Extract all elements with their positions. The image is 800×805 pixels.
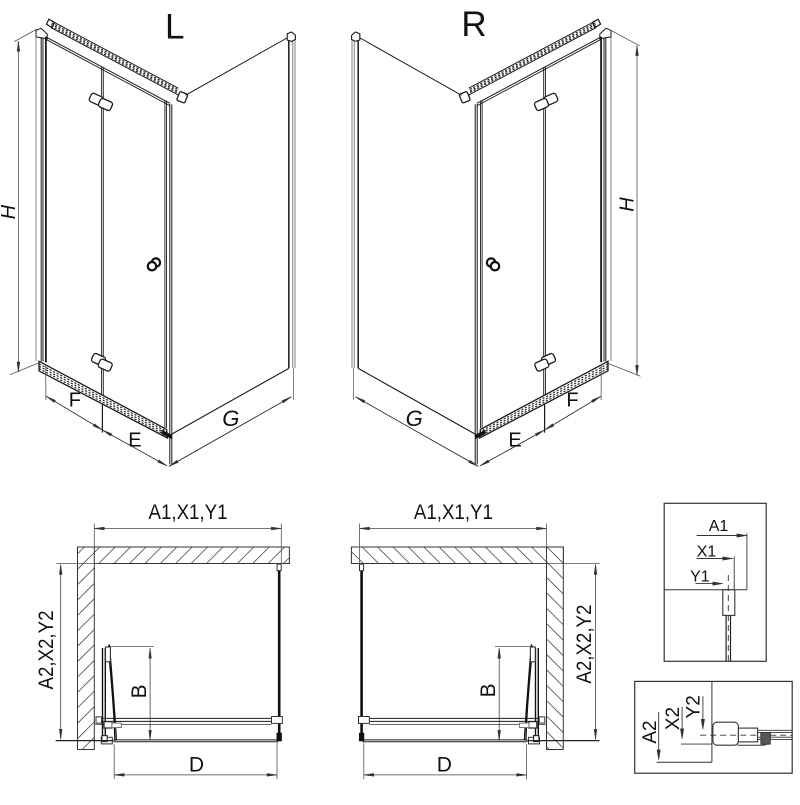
svg-text:F: F	[69, 389, 81, 411]
svg-text:H: H	[617, 197, 639, 212]
svg-text:L: L	[165, 7, 184, 46]
svg-text:H: H	[0, 204, 20, 219]
svg-text:D: D	[437, 754, 452, 777]
svg-text:A1: A1	[709, 518, 729, 535]
svg-text:F: F	[566, 389, 578, 411]
svg-text:A1,X1,Y1: A1,X1,Y1	[149, 501, 228, 524]
svg-text:X1: X1	[697, 543, 717, 560]
svg-text:A2: A2	[640, 720, 661, 743]
svg-text:B: B	[128, 684, 151, 698]
svg-text:X2: X2	[663, 707, 684, 730]
svg-text:Y2: Y2	[684, 695, 705, 718]
svg-text:E: E	[508, 429, 521, 451]
svg-text:A1,X1,Y1: A1,X1,Y1	[414, 501, 493, 524]
svg-text:A2,X2,Y2: A2,X2,Y2	[35, 611, 58, 690]
svg-text:E: E	[128, 429, 141, 451]
svg-text:G: G	[222, 406, 239, 431]
svg-text:A2,X2,Y2: A2,X2,Y2	[573, 605, 596, 684]
svg-text:Y1: Y1	[690, 568, 710, 585]
svg-text:D: D	[189, 754, 204, 777]
svg-text:G: G	[406, 406, 423, 431]
svg-text:B: B	[477, 683, 500, 697]
svg-text:R: R	[461, 5, 486, 44]
